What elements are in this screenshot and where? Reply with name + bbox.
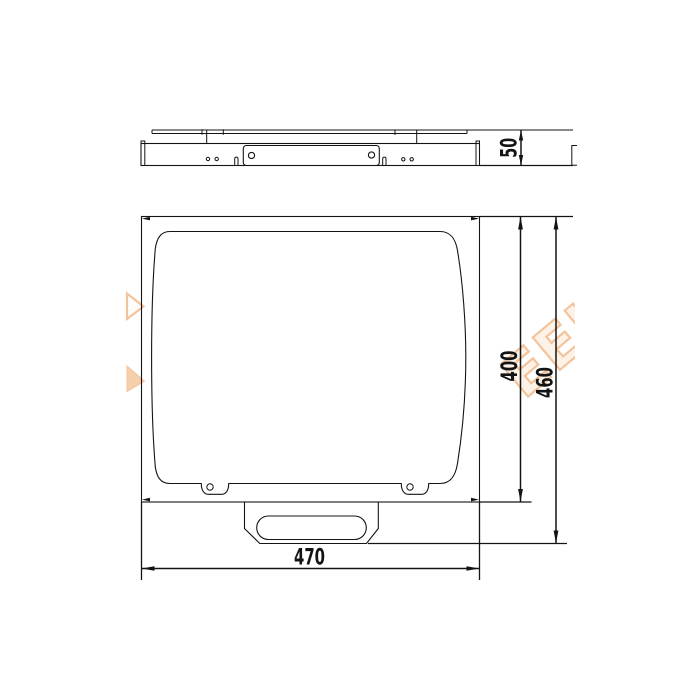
front-view <box>142 217 480 544</box>
dimension-panel-height-label: 400 <box>498 351 523 382</box>
arrow-up-icon <box>518 217 523 230</box>
arrow-down-icon <box>554 531 559 544</box>
front-view-handle-slot <box>257 516 367 540</box>
front-view-tab-hole-right <box>407 484 413 490</box>
dimension-depth: 50 <box>480 130 574 166</box>
top-view-side-flanges <box>145 144 476 166</box>
front-view-corner-notches <box>142 217 479 502</box>
top-view-plate-connectors <box>207 130 417 144</box>
arrow-left-icon <box>142 566 155 571</box>
top-view-clip-tabs <box>235 157 386 165</box>
top-view-screw-hole-right <box>368 152 374 158</box>
arrow-up-icon <box>554 217 559 230</box>
front-view-handle <box>245 502 379 544</box>
front-view-tab-hole-left <box>207 484 213 490</box>
technical-drawing-canvas: EEI 50 <box>0 0 700 700</box>
front-view-screen-bezel <box>152 232 466 495</box>
top-view-body <box>141 144 480 166</box>
arrow-down-icon <box>518 489 523 502</box>
top-view-plate <box>152 130 573 134</box>
dimension-depth-label: 50 <box>498 138 523 158</box>
drawing-page: EEI 50 <box>0 0 700 700</box>
top-view-center-bracket <box>243 146 379 166</box>
top-view-screw-hole-left <box>248 152 254 158</box>
dimension-overall-height: 460 <box>368 217 567 544</box>
front-view-panel <box>142 217 480 503</box>
dimension-width: 470 <box>142 502 480 580</box>
arrow-right-icon <box>467 566 480 571</box>
dimension-width-label: 470 <box>294 546 325 571</box>
dimension-overall-height-label: 460 <box>534 367 559 398</box>
top-view-edge-bracket-fragment <box>572 146 577 166</box>
